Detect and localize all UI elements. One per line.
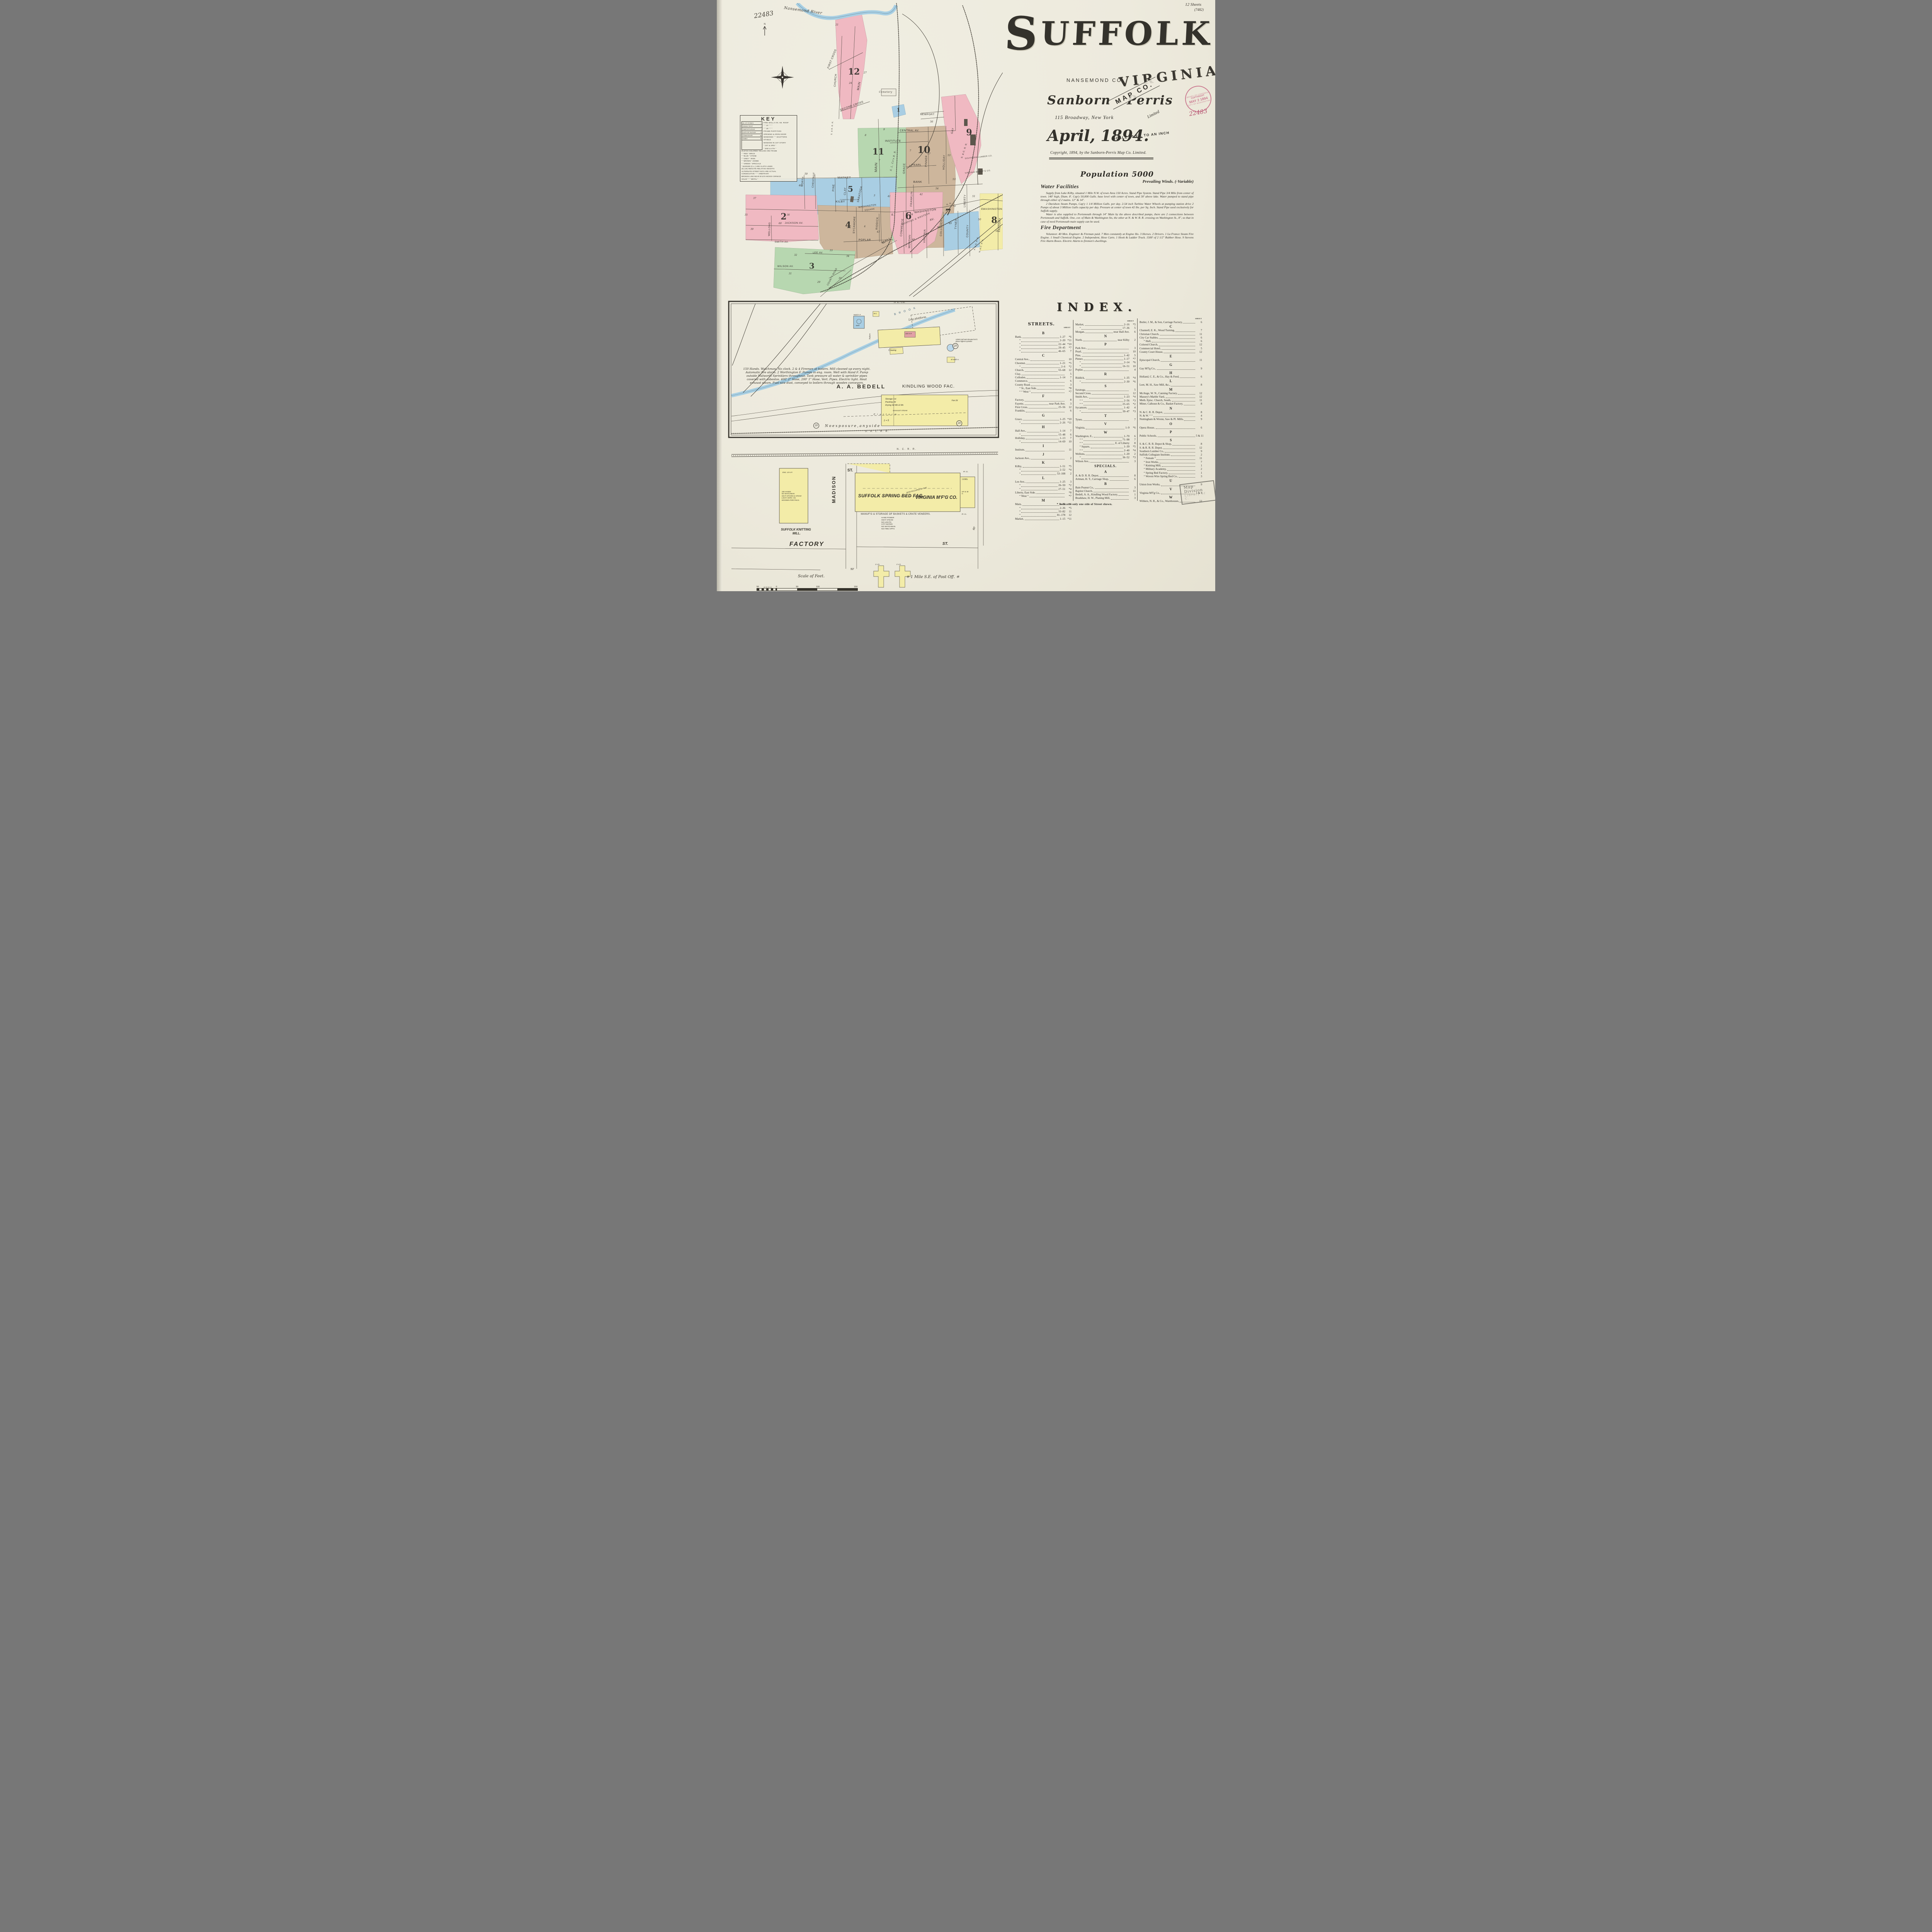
key-line: “ 2ND & 4TH “: [764, 147, 796, 150]
index-letter-header: P: [1075, 342, 1136, 347]
street-label: WASHINGTON: [983, 208, 1002, 211]
street-label: CENTRAL AV.: [900, 129, 920, 132]
dotted-leader: [1167, 470, 1195, 471]
index-row: Clay,5: [1015, 372, 1071, 376]
index-entry-sheet: 12: [1129, 392, 1136, 395]
district-number: 8: [991, 215, 997, 225]
dotted-leader: [1021, 471, 1059, 471]
index-entry-name: Episcopal Church,: [1139, 359, 1160, 362]
index-letter-header: A: [1075, 469, 1136, 474]
index-entry-name: “ “: [1075, 449, 1083, 452]
spring-bed-notes: HAND POWERHEAT STEAMNO LIGHTSCITY WATERN…: [881, 517, 895, 531]
dotted-leader: [1083, 444, 1114, 444]
index-entry-name: Butler, J. M., & Son, Carriage Factory,: [1139, 321, 1182, 324]
dotted-leader: [1171, 456, 1195, 456]
block-number: 58: [995, 230, 998, 233]
index-entry-sheet: 2: [1065, 472, 1071, 476]
no-exposure-label: N o e x p o s u r e , a n y s i d e: [825, 424, 879, 428]
dotted-leader: [1025, 405, 1048, 405]
index-row: “81–17812: [1015, 514, 1071, 517]
dotted-leader: [1026, 364, 1059, 364]
block-number: 29: [817, 281, 820, 284]
index-entry-sheet: 3: [1129, 497, 1136, 500]
scale-tick-label: 50: [796, 586, 798, 588]
street-label: PEARL: [912, 164, 922, 167]
index-row: “39–47*3: [1075, 410, 1136, 413]
index-entry-name: “ Military Academy,: [1139, 468, 1167, 471]
index-entry-name: Park Ave.,: [1075, 347, 1087, 350]
index-entry-name: Tynes,: [1075, 418, 1083, 422]
index-row: Pearl,10: [1075, 350, 1136, 354]
index-entry-name: “: [1015, 421, 1020, 425]
index-letter-header: T: [1075, 413, 1136, 418]
index-entry-name: Franklin,: [1015, 409, 1025, 413]
index-entry-range: 36–52: [1122, 456, 1129, 459]
key-line: STABLE: [764, 138, 796, 141]
scale-bar-segment: [837, 588, 857, 590]
index-entry-sheet: *7: [1129, 357, 1136, 361]
index-entry-name: “: [1075, 361, 1081, 364]
block-number: 7: [879, 159, 880, 162]
dotted-leader: [1171, 386, 1195, 386]
scale-tick-labels: 5040 30 20 10050100150: [757, 585, 858, 588]
index-entry-sheet: 4: [1129, 406, 1136, 410]
dotted-leader: [1111, 499, 1129, 500]
dotted-leader: [1082, 364, 1123, 364]
block-number: 31: [789, 272, 792, 275]
index-entry-range: 16–51: [1122, 365, 1129, 368]
index-row: Suffolk Collegiate Institute,2: [1139, 453, 1202, 457]
index-letter-header: P: [1139, 430, 1202, 434]
index-entry-name: “: [1075, 365, 1081, 368]
main-town-map: N Nansemond RiverFIRST CROSSCHURCHMAINSE…: [728, 3, 1003, 297]
index-entry-sheet: 6: [1196, 336, 1202, 340]
index-entry-name: “ West “: [1015, 495, 1029, 498]
street-label: PINNER: [925, 155, 928, 167]
dotted-leader: [1090, 462, 1129, 463]
index-entry-sheet: 6: [1196, 375, 1202, 379]
index-entry-name: Leet, M. H., Saw Mill, &c.,: [1139, 383, 1170, 387]
index-row: McAnge, W. N., Canning Factory,12: [1139, 392, 1202, 395]
index-entry-sheet: *2: [1065, 365, 1071, 369]
index-entry-sheet: 5: [1129, 327, 1136, 330]
index-entry-name: Market,: [1075, 323, 1084, 327]
dotted-leader: [1083, 420, 1129, 421]
index-row: Bain Peanut Co.,3: [1075, 486, 1136, 490]
index-row: S. & C. R. R. Depot & Shop,8: [1139, 442, 1202, 446]
index-letter-header: S: [1075, 384, 1136, 388]
index-row: Second Cross,12: [1075, 392, 1136, 395]
blacksmith-label: Bl Smith H.: [951, 359, 959, 361]
index-letter-header: N: [1075, 334, 1136, 338]
index-entry-sheet: *8: [1065, 387, 1071, 390]
index-title: INDEX.: [1057, 301, 1137, 314]
index-entry-sheet: 11: [1129, 490, 1136, 493]
index-letter-header: K: [1015, 460, 1071, 465]
water-paragraph-1: Supply from Lake Kilby, situated 1 Mile …: [1041, 191, 1194, 202]
index-entry-name: “ Hall,: [1139, 340, 1151, 343]
dotted-leader: [1023, 467, 1059, 468]
dotted-leader: [1084, 360, 1123, 360]
index-row: Holliday,1–137: [1015, 437, 1071, 440]
index-row: “15–486: [1015, 433, 1071, 437]
index-entry-sheet: 3: [1129, 347, 1136, 350]
index-row: “2–14*6: [1075, 361, 1136, 364]
block-number: 59: [804, 173, 808, 175]
index-entry-sheet: 4: [1129, 368, 1136, 372]
block-number: 7: [910, 150, 911, 152]
index-entry-range: 2–6: [1061, 365, 1065, 369]
index-entry-range: 53–108: [1057, 472, 1065, 476]
index-letter-header: G: [1139, 362, 1202, 367]
street-label: E.: [891, 214, 895, 216]
index-entry-name: Institute,: [1015, 448, 1025, 452]
scale-bar-segment: [757, 588, 777, 590]
dotted-leader: [1160, 335, 1195, 335]
kindling-wood-label: KINDLING WOOD FAC.: [902, 384, 955, 389]
index-entry-name: N. & C. R. R. Depot,: [1139, 411, 1163, 414]
index-row: Jackson Ave.,2: [1015, 457, 1071, 460]
index-entry-sheet: *3: [1129, 456, 1136, 459]
dotted-leader: [1156, 429, 1195, 429]
dotted-leader: [1083, 451, 1123, 452]
index-entry-sheet: *5: [1065, 362, 1071, 365]
index-entry-name: Smith Ave.,: [1075, 395, 1088, 399]
index-entry-range: 2–52: [1060, 468, 1065, 472]
index-entry-sheet: 6: [1196, 321, 1202, 324]
index-entry-sheet: 8: [1196, 442, 1202, 446]
key-line: “ “ 12 “ “ “: [764, 124, 796, 127]
dotted-leader: [1021, 509, 1059, 509]
index-row: “ “ West “*7: [1015, 390, 1071, 394]
index-letter-header: L: [1139, 379, 1202, 383]
index-entry-range: 25–65: [1122, 403, 1129, 406]
index-entry-name: “: [1015, 507, 1020, 510]
index-entry-sheet: 12: [1065, 369, 1071, 372]
index-entry-range: 15–48: [1058, 433, 1065, 437]
index-row: Massey's Marble Yard,12: [1139, 395, 1202, 399]
index-entry-sheet: 12: [1196, 343, 1202, 347]
index-entry-sheet: 3: [1065, 480, 1071, 484]
index-letter-header: R: [1075, 372, 1136, 376]
index-entry-name: Lee Ave.,: [1015, 480, 1026, 484]
index-entry-range: 1–42: [1124, 354, 1129, 357]
block-number: 24: [849, 82, 852, 85]
street-label: LIBERTY: [963, 194, 966, 207]
dotted-leader: [1029, 382, 1065, 383]
index-entry-range: 1–21: [1060, 362, 1065, 365]
index-entry-name: “: [1015, 339, 1020, 342]
index-entry-name: Riddick,: [1075, 376, 1085, 380]
index-letter-header: W: [1075, 430, 1136, 435]
index-entry-name: Commerce,: [1015, 379, 1028, 383]
dotted-leader: [1021, 342, 1059, 342]
index-row: Miner, Calhoun & Co., Basket Factory,8: [1139, 402, 1202, 406]
street-label: CLAY: [844, 187, 847, 196]
key-symbol-label: STABLE: [742, 138, 748, 139]
index-row: “ Iron Works,7: [1139, 461, 1202, 464]
index-divider-2: [1137, 318, 1138, 501]
knitting-mill-label-1: SUFFOLK KNITTING: [781, 528, 811, 531]
index-row: “ Square,1–39*5: [1075, 445, 1136, 449]
key-color-line: CONSECUTIVE “ “ “ ARBITRARY: [742, 173, 796, 175]
index-entry-sheet: 6: [1129, 435, 1136, 438]
index-row: Bradshaw, H. W., Planing Mill,3: [1075, 497, 1136, 500]
factory-detail-map: S. L. Co. Log platform. B R O O K 150 Ha…: [728, 298, 1003, 591]
index-entry-sheet: 9: [1196, 450, 1202, 453]
index-letter-header: B: [1015, 331, 1071, 335]
dotted-leader: [1153, 417, 1195, 417]
block-number: 45: [881, 241, 884, 244]
index-entry-sheet: 8: [1196, 383, 1202, 387]
scale-bar-segments: [757, 588, 858, 591]
index-row: Liberty, East Side,*8: [1015, 491, 1071, 495]
index-entry-sheet: *7: [1065, 390, 1071, 394]
street-label: FACTORY: [998, 218, 1001, 232]
street-label: INSTITUTE: [885, 140, 901, 143]
fire-department-heading: Fire Department: [1041, 225, 1194, 231]
street-label: WILSON AV.: [777, 265, 794, 268]
index-entry-name: Chestnut,: [1015, 362, 1026, 365]
index-row: Poplar,4: [1075, 368, 1136, 372]
index-entry-name: “: [1015, 350, 1020, 353]
index-entry-range: 1–27: [1060, 335, 1065, 339]
dotted-leader: [1091, 448, 1123, 448]
scale-tick-label: 150: [854, 586, 857, 588]
mill-building: [964, 119, 968, 126]
index-entry-name: Suffolk Collegiate Institute,: [1139, 453, 1170, 457]
index-entry-name: Wellons,: [1075, 452, 1085, 456]
key-symbol-label: SLATE OR TIN ROOF: [742, 132, 756, 133]
index-entry-name: Baptist Church,: [1075, 490, 1093, 493]
index-entry-name: “ “: [1075, 403, 1083, 406]
index-row: County Court House,12: [1139, 350, 1202, 354]
index-entry-name: “: [1015, 468, 1020, 472]
index-entry-range: 29–45: [1058, 346, 1065, 350]
dotted-leader: [1100, 476, 1129, 477]
key-color-line: B'LD'GS COLORED YELLOW ARE FRAME: [742, 150, 796, 153]
index-entry-sheet: 2: [1196, 453, 1202, 457]
index-row: Riddick,1–35*4: [1075, 376, 1136, 380]
dotted-leader: [1082, 356, 1123, 357]
index-entry-range: 2–30: [1124, 380, 1129, 384]
publisher-limited: Limited: [1146, 109, 1160, 119]
scale-tick-label: 100: [816, 586, 820, 588]
index-entry-range: 1–17: [1124, 357, 1129, 361]
index-entry-name: Central Ave.,: [1015, 358, 1030, 361]
spring-bed-factory-buildings: [847, 464, 975, 512]
index-entry-range: 1–14: [1060, 429, 1065, 433]
index-entry-name: Wilson Ave.,: [1075, 460, 1090, 463]
block-number: 42: [919, 193, 923, 196]
block-number: 34: [846, 255, 849, 258]
dotted-leader: [1021, 345, 1058, 345]
index-footnote: * Indicates only one side of Street show…: [1057, 502, 1112, 506]
block-number: 54: [935, 187, 939, 190]
index-row: Wellons,1–202: [1075, 452, 1136, 456]
index-entry-sheet: *4: [1065, 468, 1071, 472]
spring-bed-note-line: NO FIRE APP'S: [881, 528, 895, 531]
index-entry-name: Factory,: [1015, 398, 1024, 402]
index-entry-name: Southern Lumber Co.,: [1139, 450, 1164, 453]
index-entry-range: 1–35: [1124, 376, 1129, 380]
index-entry-sheet: *6: [1129, 361, 1136, 364]
index-entry-name: Colored Church,: [1139, 343, 1158, 347]
index-column-2: Market,2–16*5“17–365Morgan,near Hall Ave…: [1075, 323, 1136, 500]
dotted-leader: [1086, 429, 1124, 429]
district-number: 2: [781, 212, 786, 222]
index-row: N. & W. “ “4: [1139, 414, 1202, 418]
index-entry-sheet: 11: [1065, 510, 1071, 514]
dotted-leader: [1162, 466, 1195, 467]
height-circle-20-top: 20: [952, 343, 958, 349]
index-entry-sheet: 6: [1065, 433, 1071, 437]
index-entry-sheet: *6: [1129, 426, 1136, 430]
dotted-leader: [1183, 323, 1195, 323]
dotted-leader: [1025, 401, 1065, 401]
slco-label: S. L. Co.: [894, 301, 905, 304]
dotted-leader: [1164, 413, 1195, 413]
index-entry-sheet: 11: [1196, 399, 1202, 402]
index-entry-range: 1–9: [1125, 426, 1129, 430]
block-number: 37: [753, 197, 756, 200]
index-entry-range: 81–178: [1057, 514, 1065, 517]
index-row: County Road,3: [1015, 383, 1071, 387]
index-letter-header: J: [1015, 452, 1071, 457]
district-number: 1: [896, 107, 900, 113]
index-entry-sheet: 3: [1065, 383, 1071, 387]
index-entry-sheet: 8: [1129, 442, 1136, 445]
index-row: Market,2–16*5: [1075, 323, 1136, 327]
index-row: Opera House,6: [1139, 426, 1202, 430]
index-entry-sheet: 7: [1065, 429, 1071, 433]
key-symbol-row: SLATE OR TIN ROOFO: [742, 131, 762, 134]
dotted-leader: [1086, 379, 1123, 379]
index-entry-sheet: 2: [1129, 338, 1136, 342]
street-label: MARKET: [838, 176, 851, 179]
map-key-legend: KEY NO. OF STORIES3SHINGLE ROOF×COMPOST'…: [740, 115, 797, 182]
district-number: 5: [848, 184, 853, 194]
index-entry-range: 71–98: [1122, 438, 1129, 442]
storage-label: Storage 1st: [885, 398, 896, 400]
block-number: 4: [864, 225, 866, 228]
key-symbol-row: COMPOST'N ROOF•: [742, 128, 762, 131]
street-label: BANK: [913, 180, 922, 184]
index-entry-sheet: *6: [1129, 380, 1136, 384]
index-row: Channell, E. K., Wood Turning,7: [1139, 329, 1202, 332]
block-number: 57: [927, 153, 930, 155]
index-entry-sheet: *4: [1129, 376, 1136, 380]
dotted-leader: [1021, 349, 1058, 349]
index-row: Central Ave.,10: [1015, 358, 1071, 361]
index-letter-header: G: [1015, 413, 1071, 418]
street-label: KILBY: [836, 200, 845, 203]
index-entry-name: S. & R. R. R. Depot,: [1139, 446, 1163, 450]
block-number: 55: [909, 165, 912, 168]
index-entry-sheet: *5: [1129, 445, 1136, 449]
index-entry-name: Opera House,: [1139, 426, 1155, 430]
key-line: WINDOW IN 1ST STORY: [764, 141, 796, 144]
dotted-leader: [1172, 401, 1195, 401]
spring-bed-note-line: HAND POWER: [881, 517, 895, 519]
key-symbol-row: STEAM BOILER▬: [742, 134, 762, 137]
index-entry-name: Poplar,: [1075, 368, 1083, 372]
dotted-leader: [1085, 333, 1112, 333]
index-entry-name: Nottingham & Wrenn, Saw & Pl. Mills,: [1139, 418, 1184, 421]
index-entry-name: Church,: [1015, 369, 1024, 372]
block-number: 33: [830, 249, 833, 252]
dotted-leader: [1082, 383, 1123, 383]
index-entry-name: Main,: [1015, 503, 1022, 506]
index-entry-name: County Court House,: [1139, 350, 1163, 354]
index-entry-name: Christian Church,: [1139, 333, 1159, 336]
index-row: Bedell, A. A., Kindling Wood Factory,1: [1075, 493, 1136, 497]
block-number: 3: [874, 194, 875, 197]
index-letter-header: O: [1139, 422, 1202, 426]
index-entry-sheet: *10: [1065, 418, 1071, 421]
dotted-leader: [1083, 440, 1122, 441]
district-number: 12: [848, 67, 860, 77]
ncrr-label: N. C. R. R.: [897, 448, 917, 451]
dotted-leader: [1023, 420, 1059, 420]
index-letter-header: F: [1015, 394, 1071, 398]
index-entry-sheet: 7: [1196, 329, 1202, 332]
index-specials-heading: SPECIALS.: [1075, 463, 1136, 469]
index-entry-name: “: [1015, 510, 1020, 514]
street-label: HOLLIDAY: [942, 155, 946, 170]
index-entry-name: “ Spring Bed Factory,: [1139, 471, 1168, 475]
index-row: “2–36*5: [1015, 507, 1071, 510]
index-row: Christian Church,11: [1139, 333, 1202, 336]
block-number: 36: [787, 214, 790, 216]
index-letter-header: C: [1015, 353, 1071, 358]
compass-rose-icon: [771, 66, 794, 89]
dotted-leader: [1089, 398, 1123, 398]
scale-bar: 5040 30 20 10050100150: [757, 585, 858, 591]
block-number: 49: [948, 222, 952, 225]
index-entry-name: Grace,: [1015, 418, 1022, 421]
post-office-distance-note: ✳ 1 Mile S.E. of Post Off. ✳: [906, 575, 959, 579]
index-row: “ “2–56*3: [1075, 399, 1136, 403]
street-label: MORGAN: [908, 235, 911, 248]
block-number: 44: [910, 213, 913, 216]
scale-bar-segment: [797, 588, 817, 590]
street-label: LEE AV.: [813, 252, 823, 254]
index-entry-name: Public Schools,: [1139, 434, 1157, 438]
index-row: Church,55–6812: [1015, 369, 1071, 372]
packing-label: Packing 2d: [885, 401, 896, 403]
index-row: Episcopal Church,11: [1139, 359, 1202, 362]
knitting-mill-note-line: WOODEN FIRE PAILS.: [782, 499, 801, 501]
index-row: S. & R. R. R. Depot,12: [1139, 446, 1202, 450]
county-label: NANSEMOND CO.: [1066, 77, 1124, 83]
index-entry-name: County Road,: [1015, 383, 1031, 387]
dotted-leader: [1160, 463, 1195, 463]
index-entry-name: Bank,: [1015, 335, 1022, 339]
index-row: Leet, M. H., Saw Mill, &c.,8: [1139, 383, 1202, 387]
key-color-line: ” ” BROWN “ ADOBE: [742, 160, 796, 163]
district-number: 11: [872, 147, 884, 157]
drying-label: Drying 3d 4th & 5th: [885, 404, 903, 406]
dotted-leader: [1021, 352, 1058, 352]
index-row: Saratoga,5: [1075, 388, 1136, 392]
index-row: Franklin,6: [1015, 409, 1071, 413]
index-entry-name: Virginia,: [1075, 426, 1085, 430]
index-entry-name: Withers, N. R., & Co., Warehouses,: [1139, 500, 1179, 503]
index-row: Colored Church,12: [1139, 343, 1202, 347]
index-entry-sheet: *3: [1129, 399, 1136, 403]
index-entry-name: Union Iron Works,: [1139, 483, 1160, 486]
